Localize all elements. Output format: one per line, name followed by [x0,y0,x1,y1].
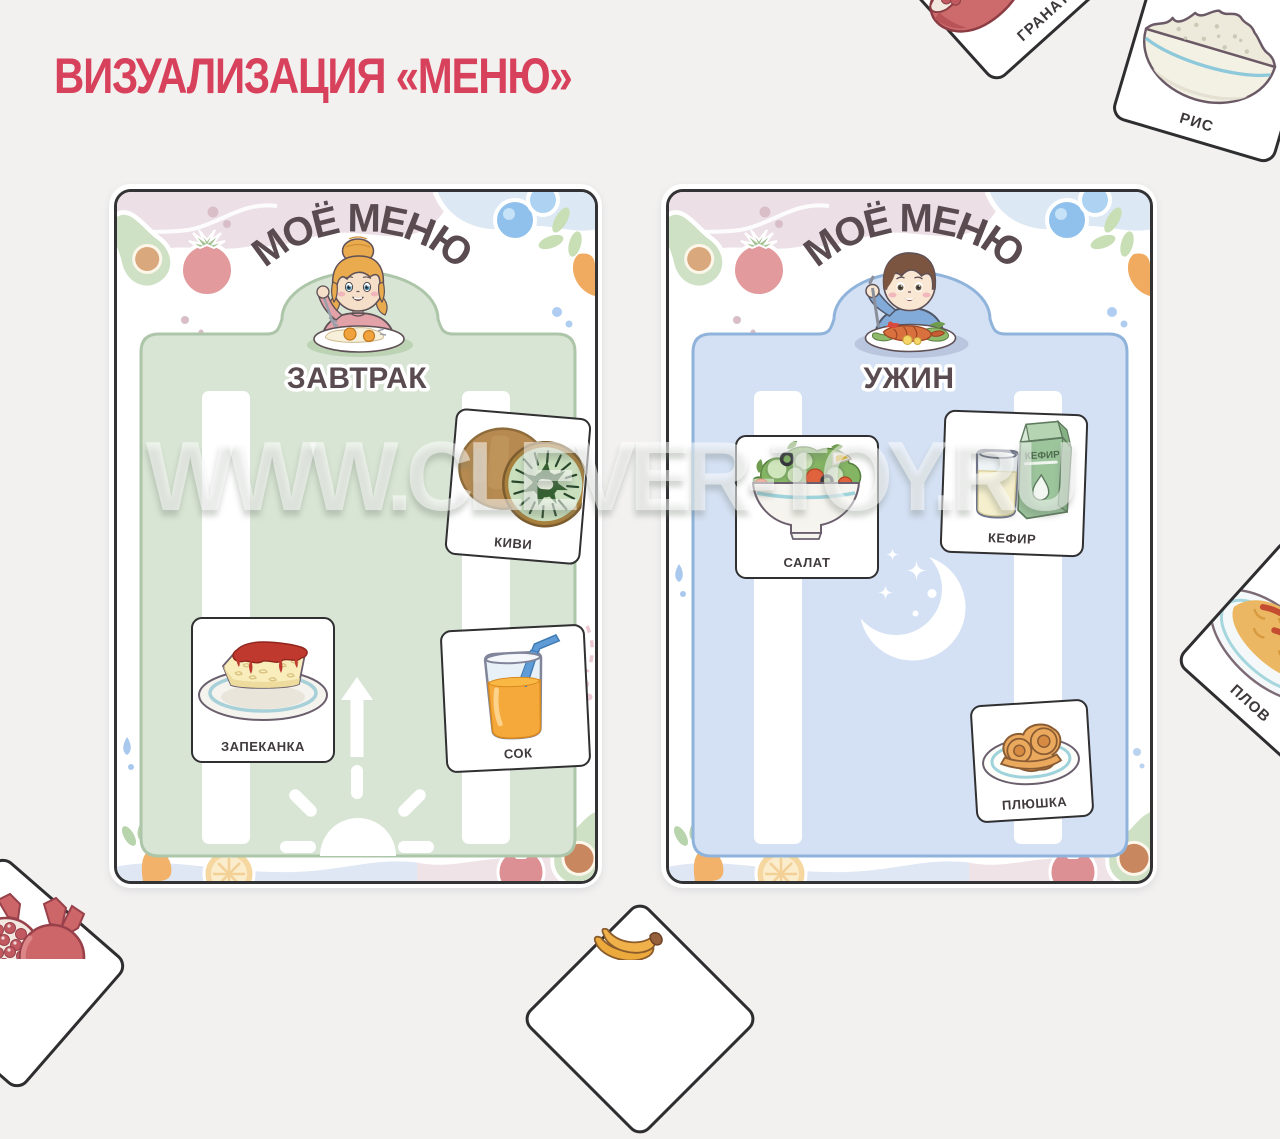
svg-text:УЖИН: УЖИН [863,362,954,395]
svg-text:ЗАВТРАК: ЗАВТРАК [287,362,427,395]
